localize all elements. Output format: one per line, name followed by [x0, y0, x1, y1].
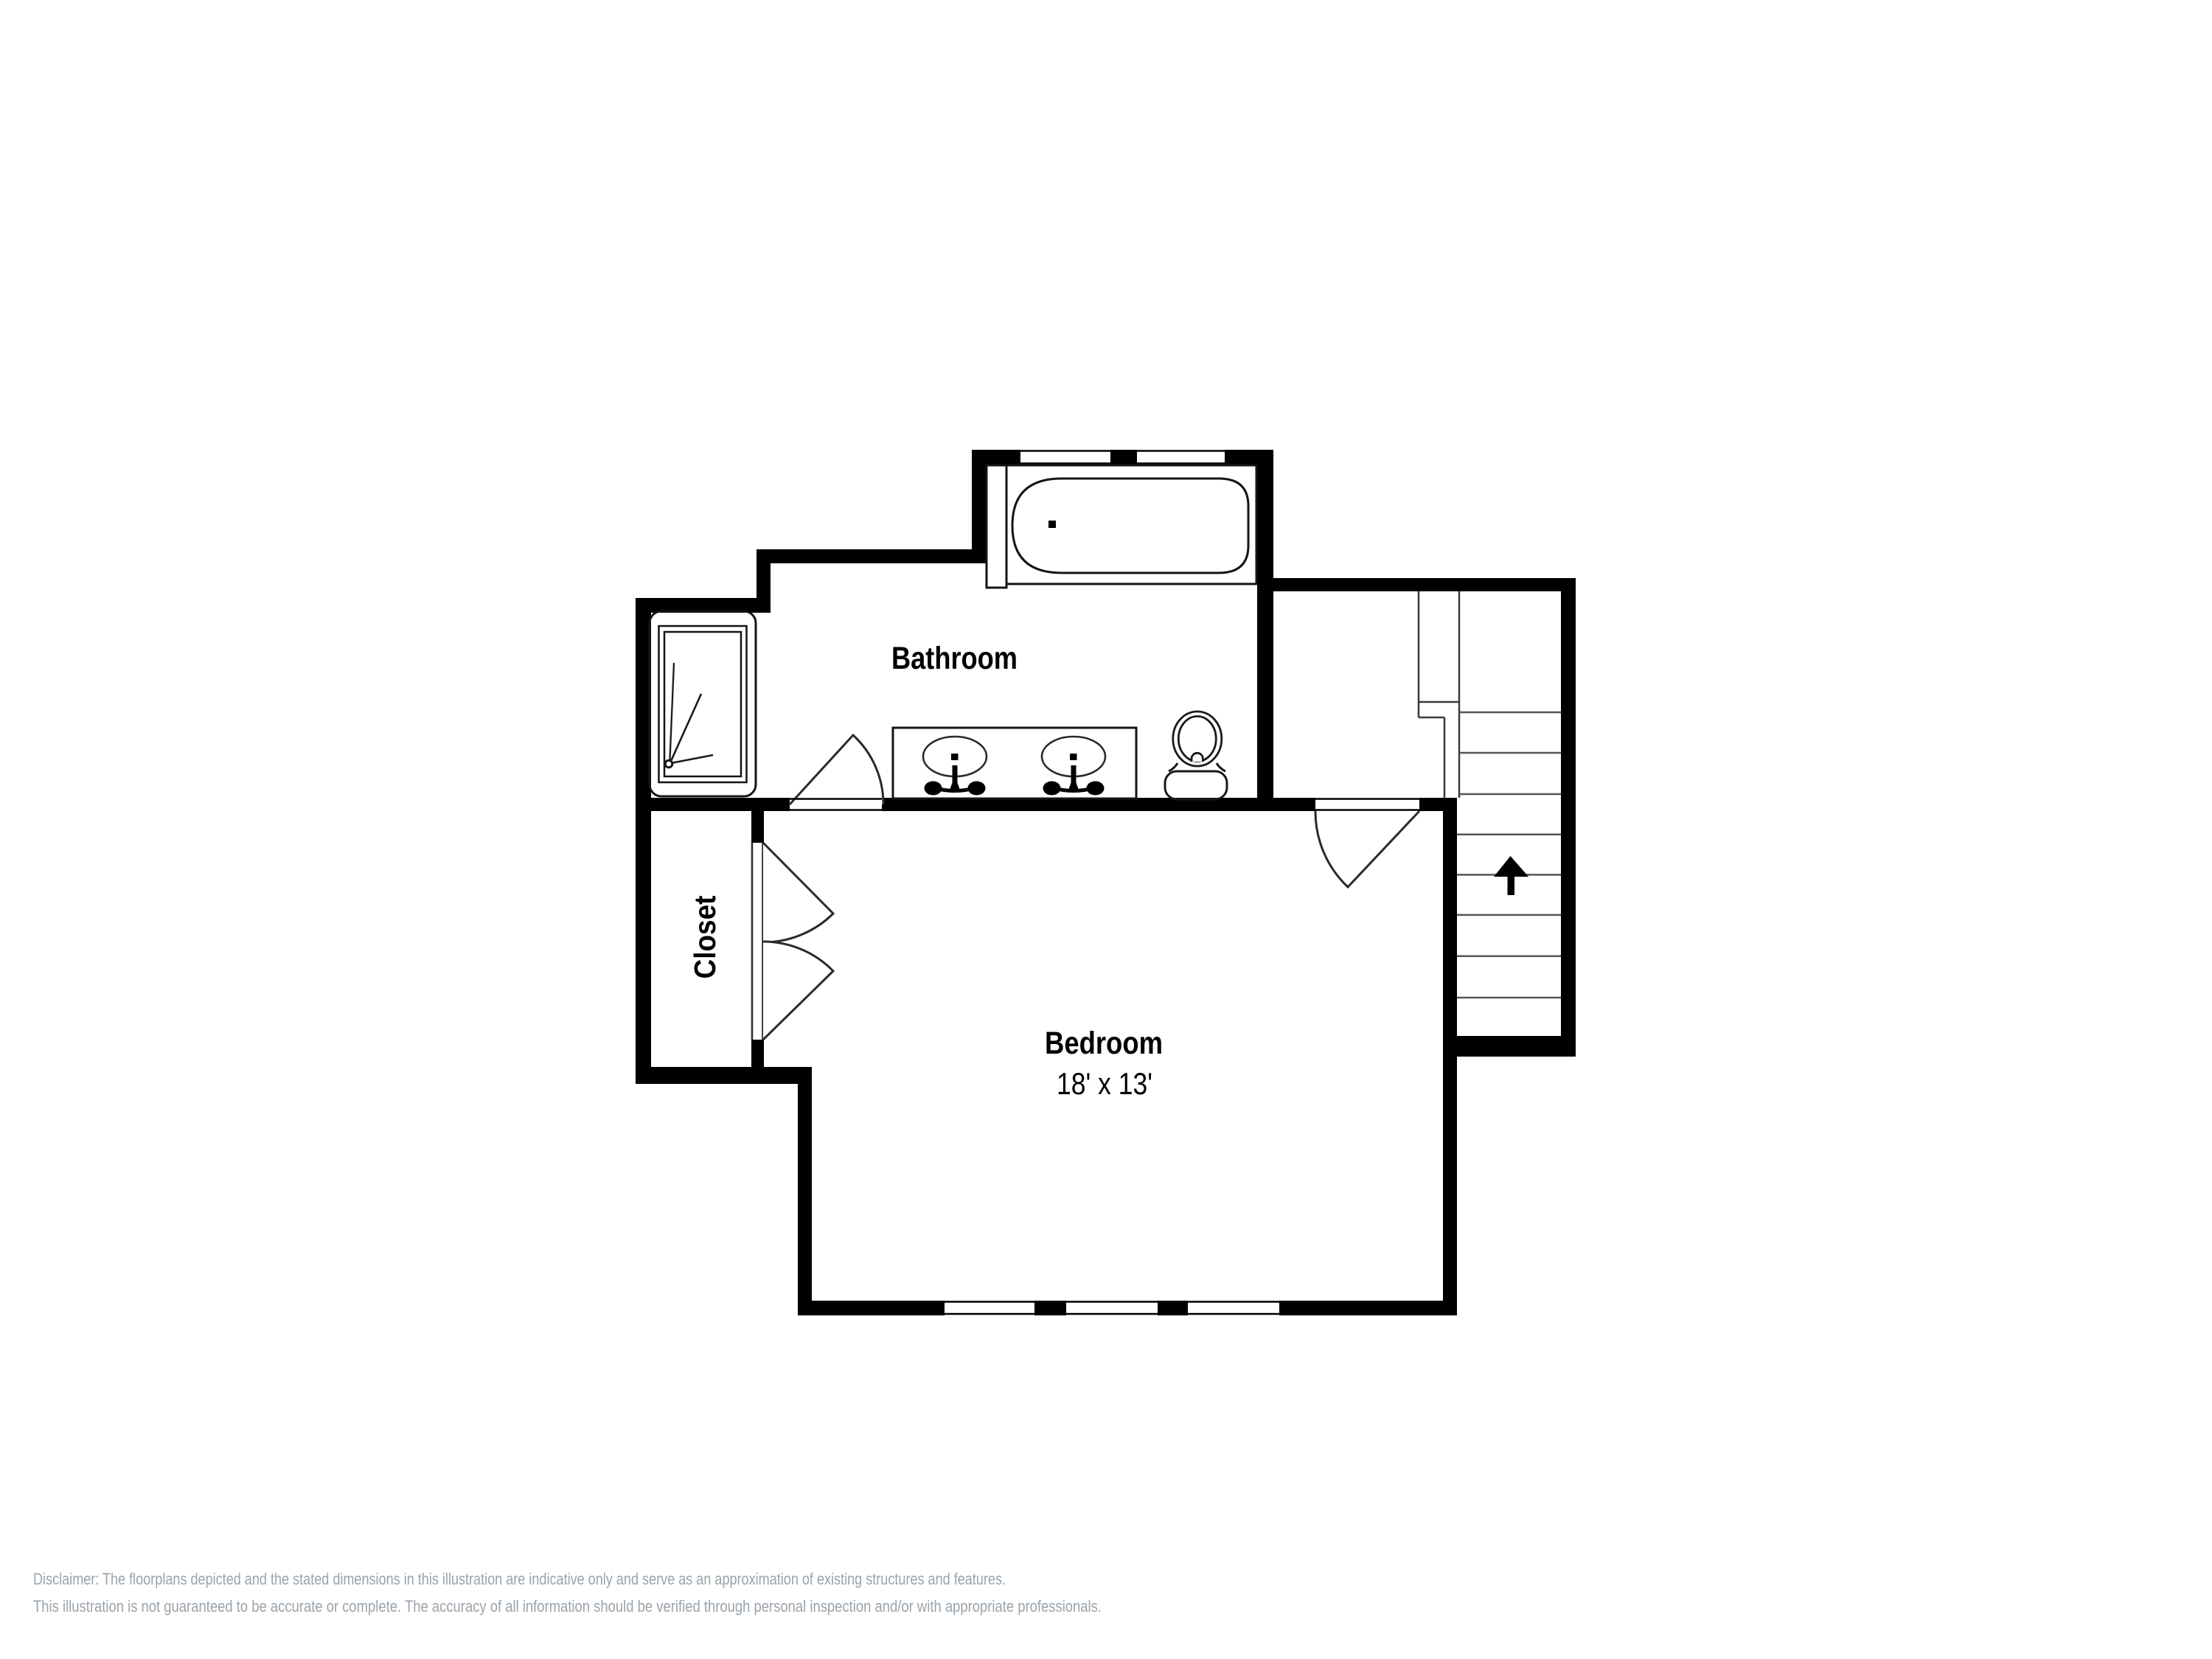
svg-text:Bedroom: Bedroom: [1045, 1026, 1163, 1061]
svg-text:This illustration is not guara: This illustration is not guaranteed to b…: [33, 1597, 1102, 1615]
svg-text:Bathroom: Bathroom: [891, 641, 1018, 676]
svg-text:Disclaimer: The floorplans dep: Disclaimer: The floorplans depicted and …: [33, 1570, 1006, 1588]
svg-text:18' x 13': 18' x 13': [1057, 1066, 1152, 1101]
svg-text:Closet: Closet: [688, 895, 722, 978]
